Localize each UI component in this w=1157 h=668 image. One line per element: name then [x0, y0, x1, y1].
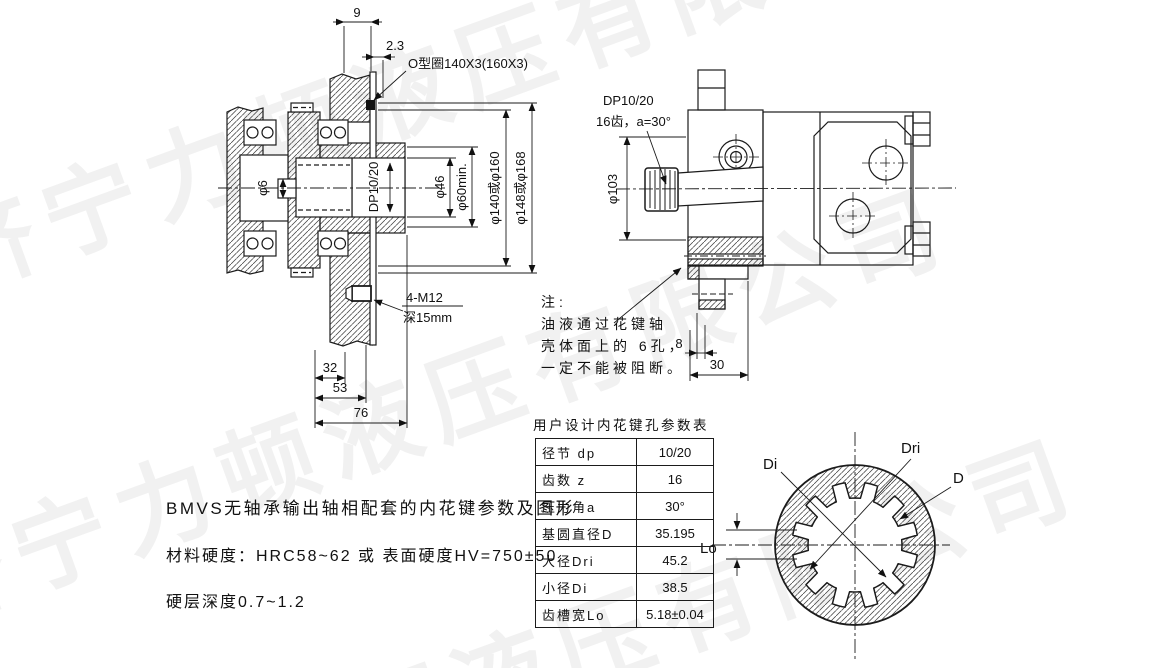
label-di: Di	[763, 456, 777, 473]
row-value: 5.18±0.04	[637, 601, 714, 628]
ball-bearing	[244, 120, 276, 145]
table-row: 小径Di 38.5	[536, 574, 714, 601]
dim-phi103: φ103	[605, 174, 620, 204]
label-d: D	[953, 470, 964, 487]
spline-spec-line1: DP10/20	[603, 93, 654, 108]
ball-bearing	[244, 231, 276, 256]
table-row: 大径Dri 45.2	[536, 547, 714, 574]
note-line: 一定不能被阻断。	[541, 357, 687, 379]
m12-hole	[352, 286, 371, 301]
dim-9: 9	[353, 5, 360, 20]
row-value: 35.195	[637, 520, 714, 547]
spline-coupling	[296, 158, 352, 217]
row-value: 30°	[637, 493, 714, 520]
row-label: 齿槽宽Lo	[536, 601, 637, 628]
oring-seal	[366, 100, 375, 110]
hex-bolt	[905, 222, 930, 256]
row-label: 小径Di	[536, 574, 637, 601]
table-row: 齿槽宽Lo 5.18±0.04	[536, 601, 714, 628]
dim-2-3: 2.3	[386, 38, 404, 53]
table-title: 用户设计内花键孔参数表	[533, 414, 709, 434]
dim-dp10-20: DP10/20	[366, 162, 381, 213]
dim-53: 53	[333, 380, 347, 395]
row-value: 38.5	[637, 574, 714, 601]
note-line: 注:	[541, 291, 687, 313]
footnote-depth: 硬层深度0.7~1.2	[166, 588, 306, 612]
row-value: 16	[637, 466, 714, 493]
spline-parameter-table: 径节 dp 10/20 齿数 z 16 压力角a 30° 基圆直径D 35.19…	[535, 438, 714, 628]
dim-phi140-160: φ140或φ160	[487, 151, 502, 224]
footnote-hardness: 材料硬度：HRC58~62 或 表面硬度HV=750±50	[166, 542, 557, 566]
ball-bearing	[318, 231, 348, 256]
dim-76: 76	[354, 405, 368, 420]
dim-32: 32	[323, 360, 337, 375]
end-plate	[814, 122, 911, 253]
m12-label-line2: 深15mm	[403, 310, 452, 325]
footnote-title: BMVS无轴承输出轴相配套的内花键参数及图形	[166, 494, 575, 519]
port-hole	[829, 192, 877, 240]
label-dri: Dri	[901, 440, 920, 457]
spline-spec-line2: 16齿，a=30°	[596, 114, 671, 129]
row-label: 径节 dp	[536, 439, 637, 466]
oil-passage-note: 注: 油液通过花键轴 壳体面上的 6孔， 一定不能被阻断。	[541, 291, 687, 379]
spline-profile-view: Di Dri D Lo	[700, 432, 964, 660]
oring-label: O型圈140X3(160X3)	[408, 56, 528, 71]
drawing-sheet: 济宁力顿液压有限公司 济宁力顿液压有限公司 济宁力顿液压有限公司	[0, 0, 1157, 668]
dim-phi148-168: φ148或φ168	[513, 151, 528, 224]
m12-label-line1: 4-M12	[406, 290, 443, 305]
row-value: 45.2	[637, 547, 714, 574]
port-hole	[862, 139, 910, 187]
ball-bearing	[318, 120, 348, 145]
flange-plate-top	[330, 74, 370, 122]
left-section-view: 9 2.3 O型圈140X3(160X3) φ6 DP10/20 φ46 φ60…	[218, 5, 537, 428]
dim-phi60min: φ60min.	[454, 163, 469, 210]
hex-bolt	[905, 112, 930, 146]
note-line: 壳体面上的 6孔，	[541, 335, 687, 357]
dim-30: 30	[710, 357, 724, 372]
dim-phi46: φ46	[432, 176, 447, 199]
phi6-bore	[278, 179, 296, 198]
rear-flange	[688, 237, 763, 254]
output-shaft	[678, 167, 763, 206]
mounting-tab	[698, 70, 725, 110]
row-value: 10/20	[637, 439, 714, 466]
note-line: 油液通过花键轴	[541, 313, 687, 335]
table-row: 基圆直径D 35.195	[536, 520, 714, 547]
table-row: 齿数 z 16	[536, 466, 714, 493]
row-label: 齿数 z	[536, 466, 637, 493]
table-row: 径节 dp 10/20	[536, 439, 714, 466]
dim-phi6: φ6	[255, 180, 270, 196]
